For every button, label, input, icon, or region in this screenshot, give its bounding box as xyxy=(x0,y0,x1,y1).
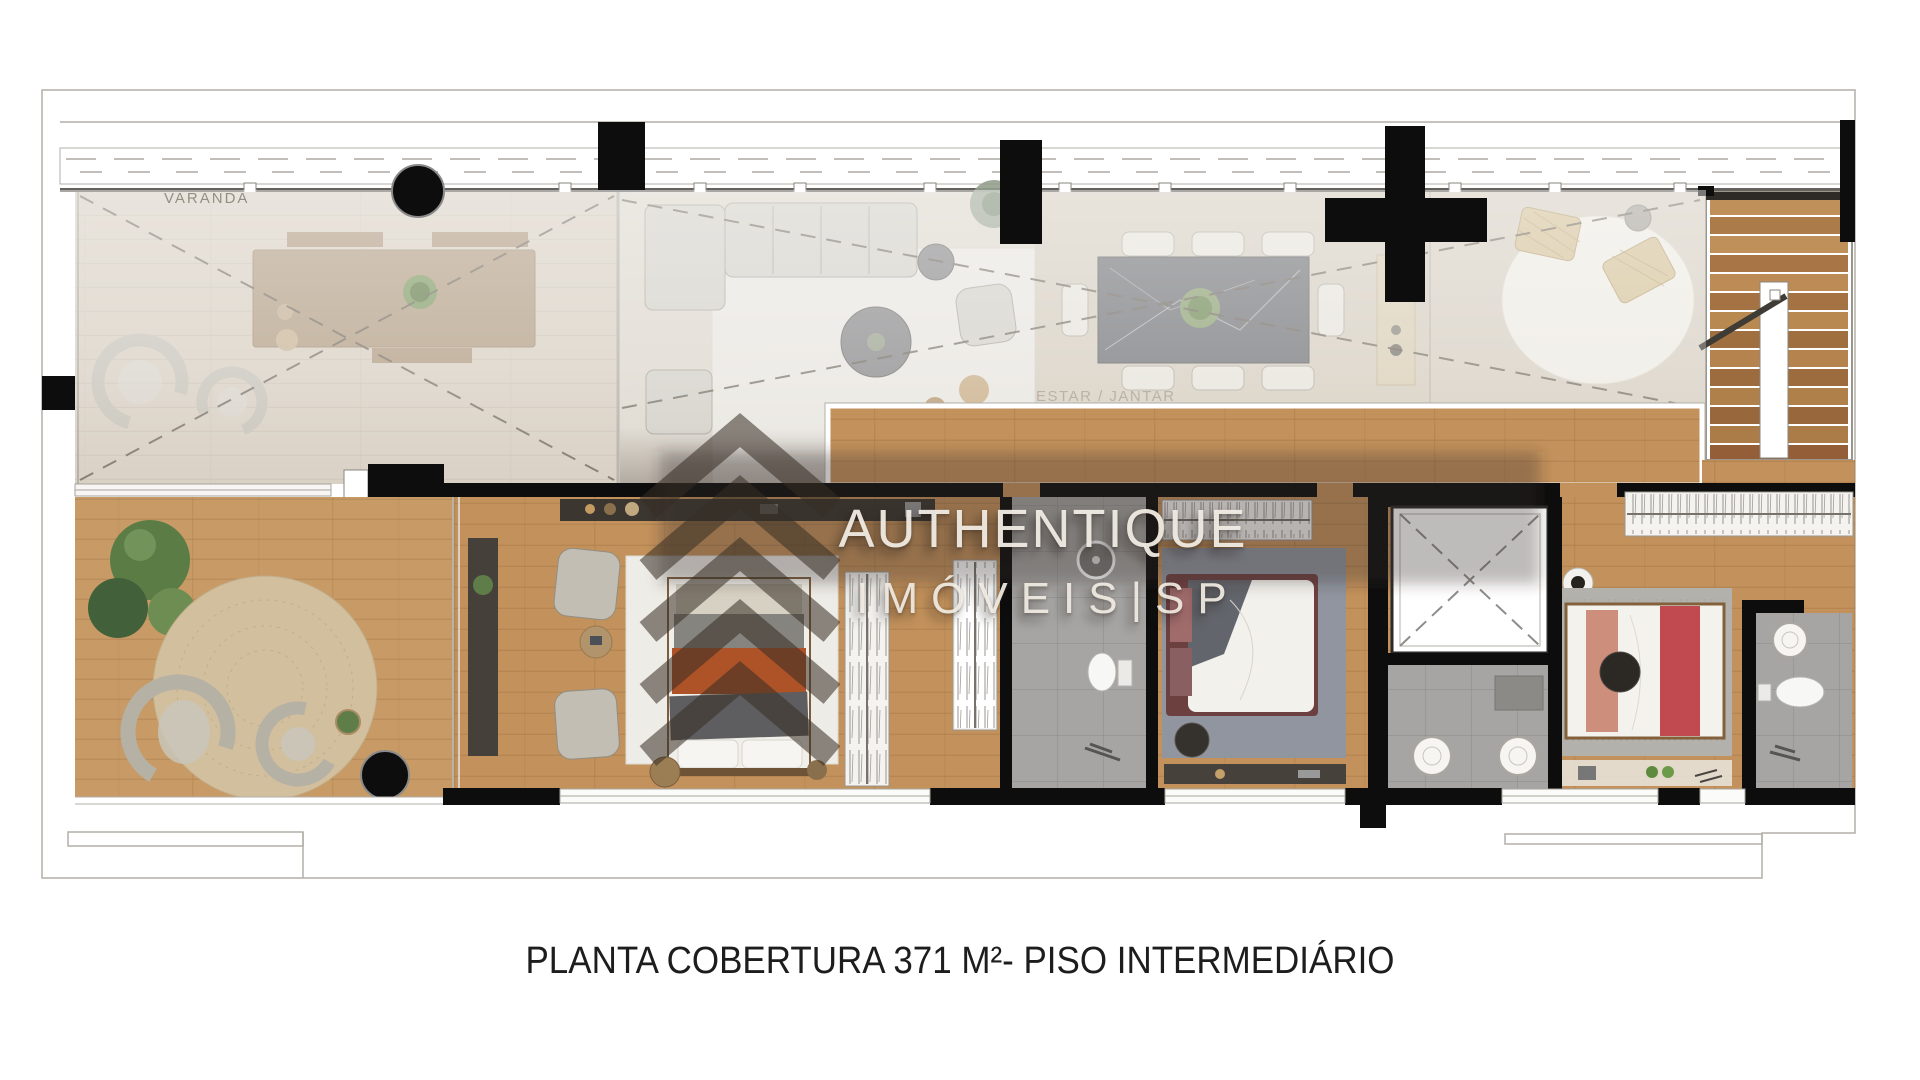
bedroom-armchair-2 xyxy=(554,688,621,760)
watermark-brand: AUTHENTIQUE xyxy=(833,498,1253,560)
bathroom-3 xyxy=(1742,600,1852,795)
bed-3 xyxy=(1566,604,1724,738)
watermark-subtitle: IMÓVEIS|SP xyxy=(833,574,1253,624)
sink-2b xyxy=(1499,737,1537,775)
terrace-column xyxy=(361,751,409,799)
toilet-1 xyxy=(1088,653,1116,691)
watermark-text: AUTHENTIQUE IMÓVEIS|SP xyxy=(833,498,1253,624)
bedroom-armchair-1 xyxy=(553,547,622,621)
sink-2a xyxy=(1413,737,1451,775)
room-label-varanda: VARANDA xyxy=(164,190,249,207)
pouf-3 xyxy=(1600,652,1640,692)
sink-3 xyxy=(1773,623,1807,657)
room-label-estar-jantar: ESTAR / JANTAR xyxy=(1036,388,1176,405)
toilet-3 xyxy=(1776,677,1824,707)
media-console xyxy=(468,538,498,756)
room-terrace xyxy=(75,497,459,800)
balcony-slab-band xyxy=(60,148,1852,197)
plan-caption: PLANTA COBERTURA 371 M²- PISO INTERMEDIÁ… xyxy=(77,940,1843,983)
staircase xyxy=(1698,186,1852,460)
potted-plant xyxy=(336,710,360,734)
pouf-2 xyxy=(1175,723,1209,757)
floor-plan-image: VARANDA ESTAR / JANTAR AUTHENTIQUE IMÓVE… xyxy=(0,0,1920,1080)
